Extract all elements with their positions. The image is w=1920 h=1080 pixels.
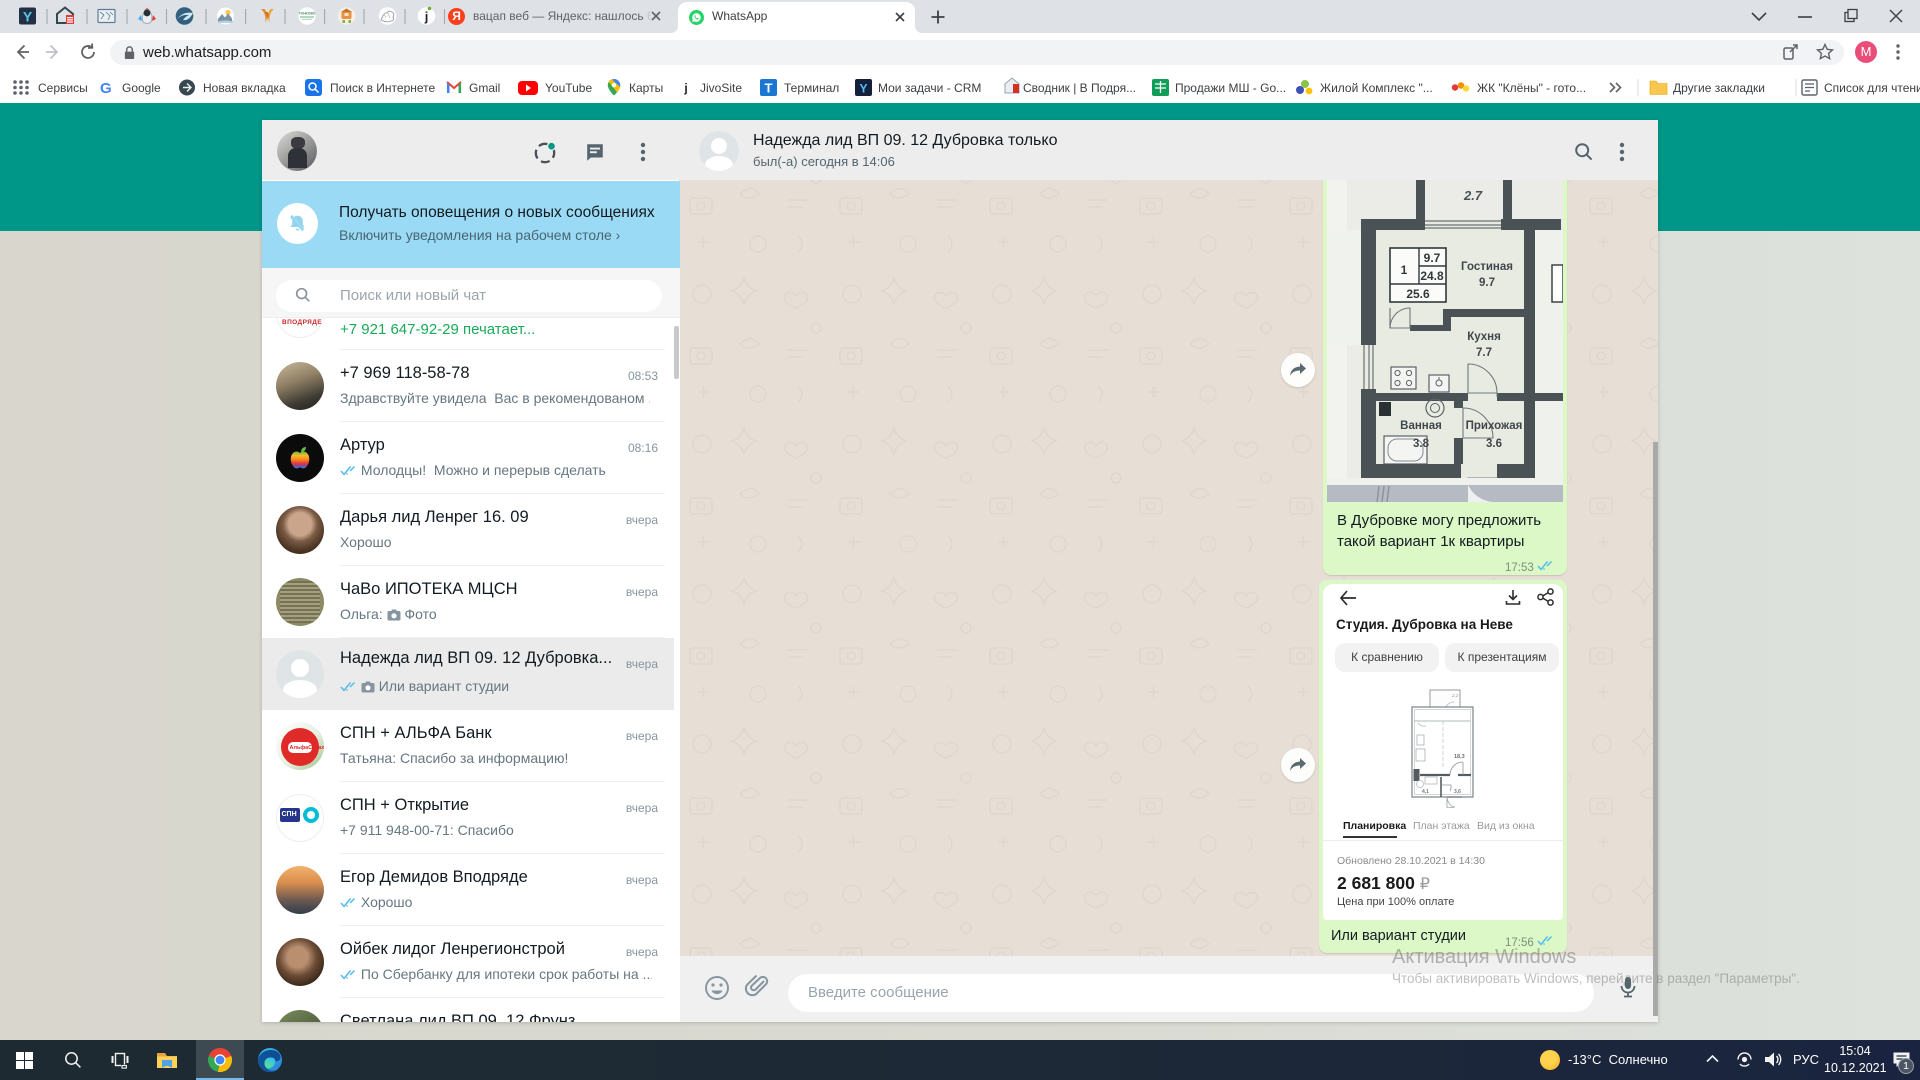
svg-text:Терминал: Терминал — [784, 81, 839, 95]
svg-text:3,6: 3,6 — [1454, 789, 1461, 795]
svg-text:JivoSite: JivoSite — [700, 81, 742, 95]
svg-text:Сводник | В Подря...: Сводник | В Подря... — [1023, 81, 1136, 95]
svg-text:Сервисы: Сервисы — [38, 81, 88, 95]
svg-text:Карты: Карты — [629, 81, 663, 95]
svg-text:4,1: 4,1 — [1422, 789, 1429, 795]
svg-text:T: T — [765, 81, 773, 96]
svg-text:Новая вкладка: Новая вкладка — [203, 81, 286, 95]
svg-text:Список для чтения: Список для чтения — [1824, 81, 1920, 95]
svg-text:9.7: 9.7 — [1424, 251, 1441, 265]
svg-text:Другие закладки: Другие закладки — [1673, 81, 1765, 95]
svg-text:2.7: 2.7 — [1463, 188, 1483, 203]
svg-text:1: 1 — [1401, 263, 1408, 277]
svg-text:7.7: 7.7 — [1476, 347, 1492, 359]
svg-text:3.6: 3.6 — [1486, 438, 1502, 450]
svg-text:3.8: 3.8 — [1413, 438, 1430, 450]
svg-text:9.7: 9.7 — [1479, 277, 1495, 289]
svg-text:18,3: 18,3 — [1454, 754, 1465, 760]
svg-text:Y: Y — [859, 82, 867, 96]
svg-text:Y: Y — [23, 9, 33, 25]
svg-text:YouTube: YouTube — [545, 81, 592, 95]
svg-text:Google: Google — [122, 81, 161, 95]
svg-text:Кухня: Кухня — [1467, 331, 1501, 343]
svg-text:Продажи МШ - Go...: Продажи МШ - Go... — [1175, 81, 1286, 95]
svg-text:G: G — [100, 80, 112, 97]
svg-text:j: j — [683, 81, 687, 95]
svg-text:ЖК "Клёны" - гото...: ЖК "Клёны" - гото... — [1477, 81, 1586, 95]
svg-text:Gmail: Gmail — [469, 81, 500, 95]
svg-text:Жилой Комплекс "...: Жилой Комплекс "... — [1320, 81, 1433, 95]
svg-text:Поиск в Интернете: Поиск в Интернете — [330, 81, 436, 95]
svg-text:j: j — [424, 9, 429, 24]
svg-text:25.6: 25.6 — [1406, 287, 1430, 301]
svg-text:2,2: 2,2 — [1451, 693, 1459, 698]
svg-text:Ванная: Ванная — [1400, 420, 1442, 432]
svg-text:24.8: 24.8 — [1420, 269, 1444, 283]
svg-text:ТОНКОВО: ТОНКОВО — [299, 12, 316, 16]
svg-text:Мои задачи - CRM: Мои задачи - CRM — [878, 81, 981, 95]
svg-text:Гостиная: Гостиная — [1461, 261, 1513, 273]
svg-text:Прихожая: Прихожая — [1466, 420, 1523, 432]
